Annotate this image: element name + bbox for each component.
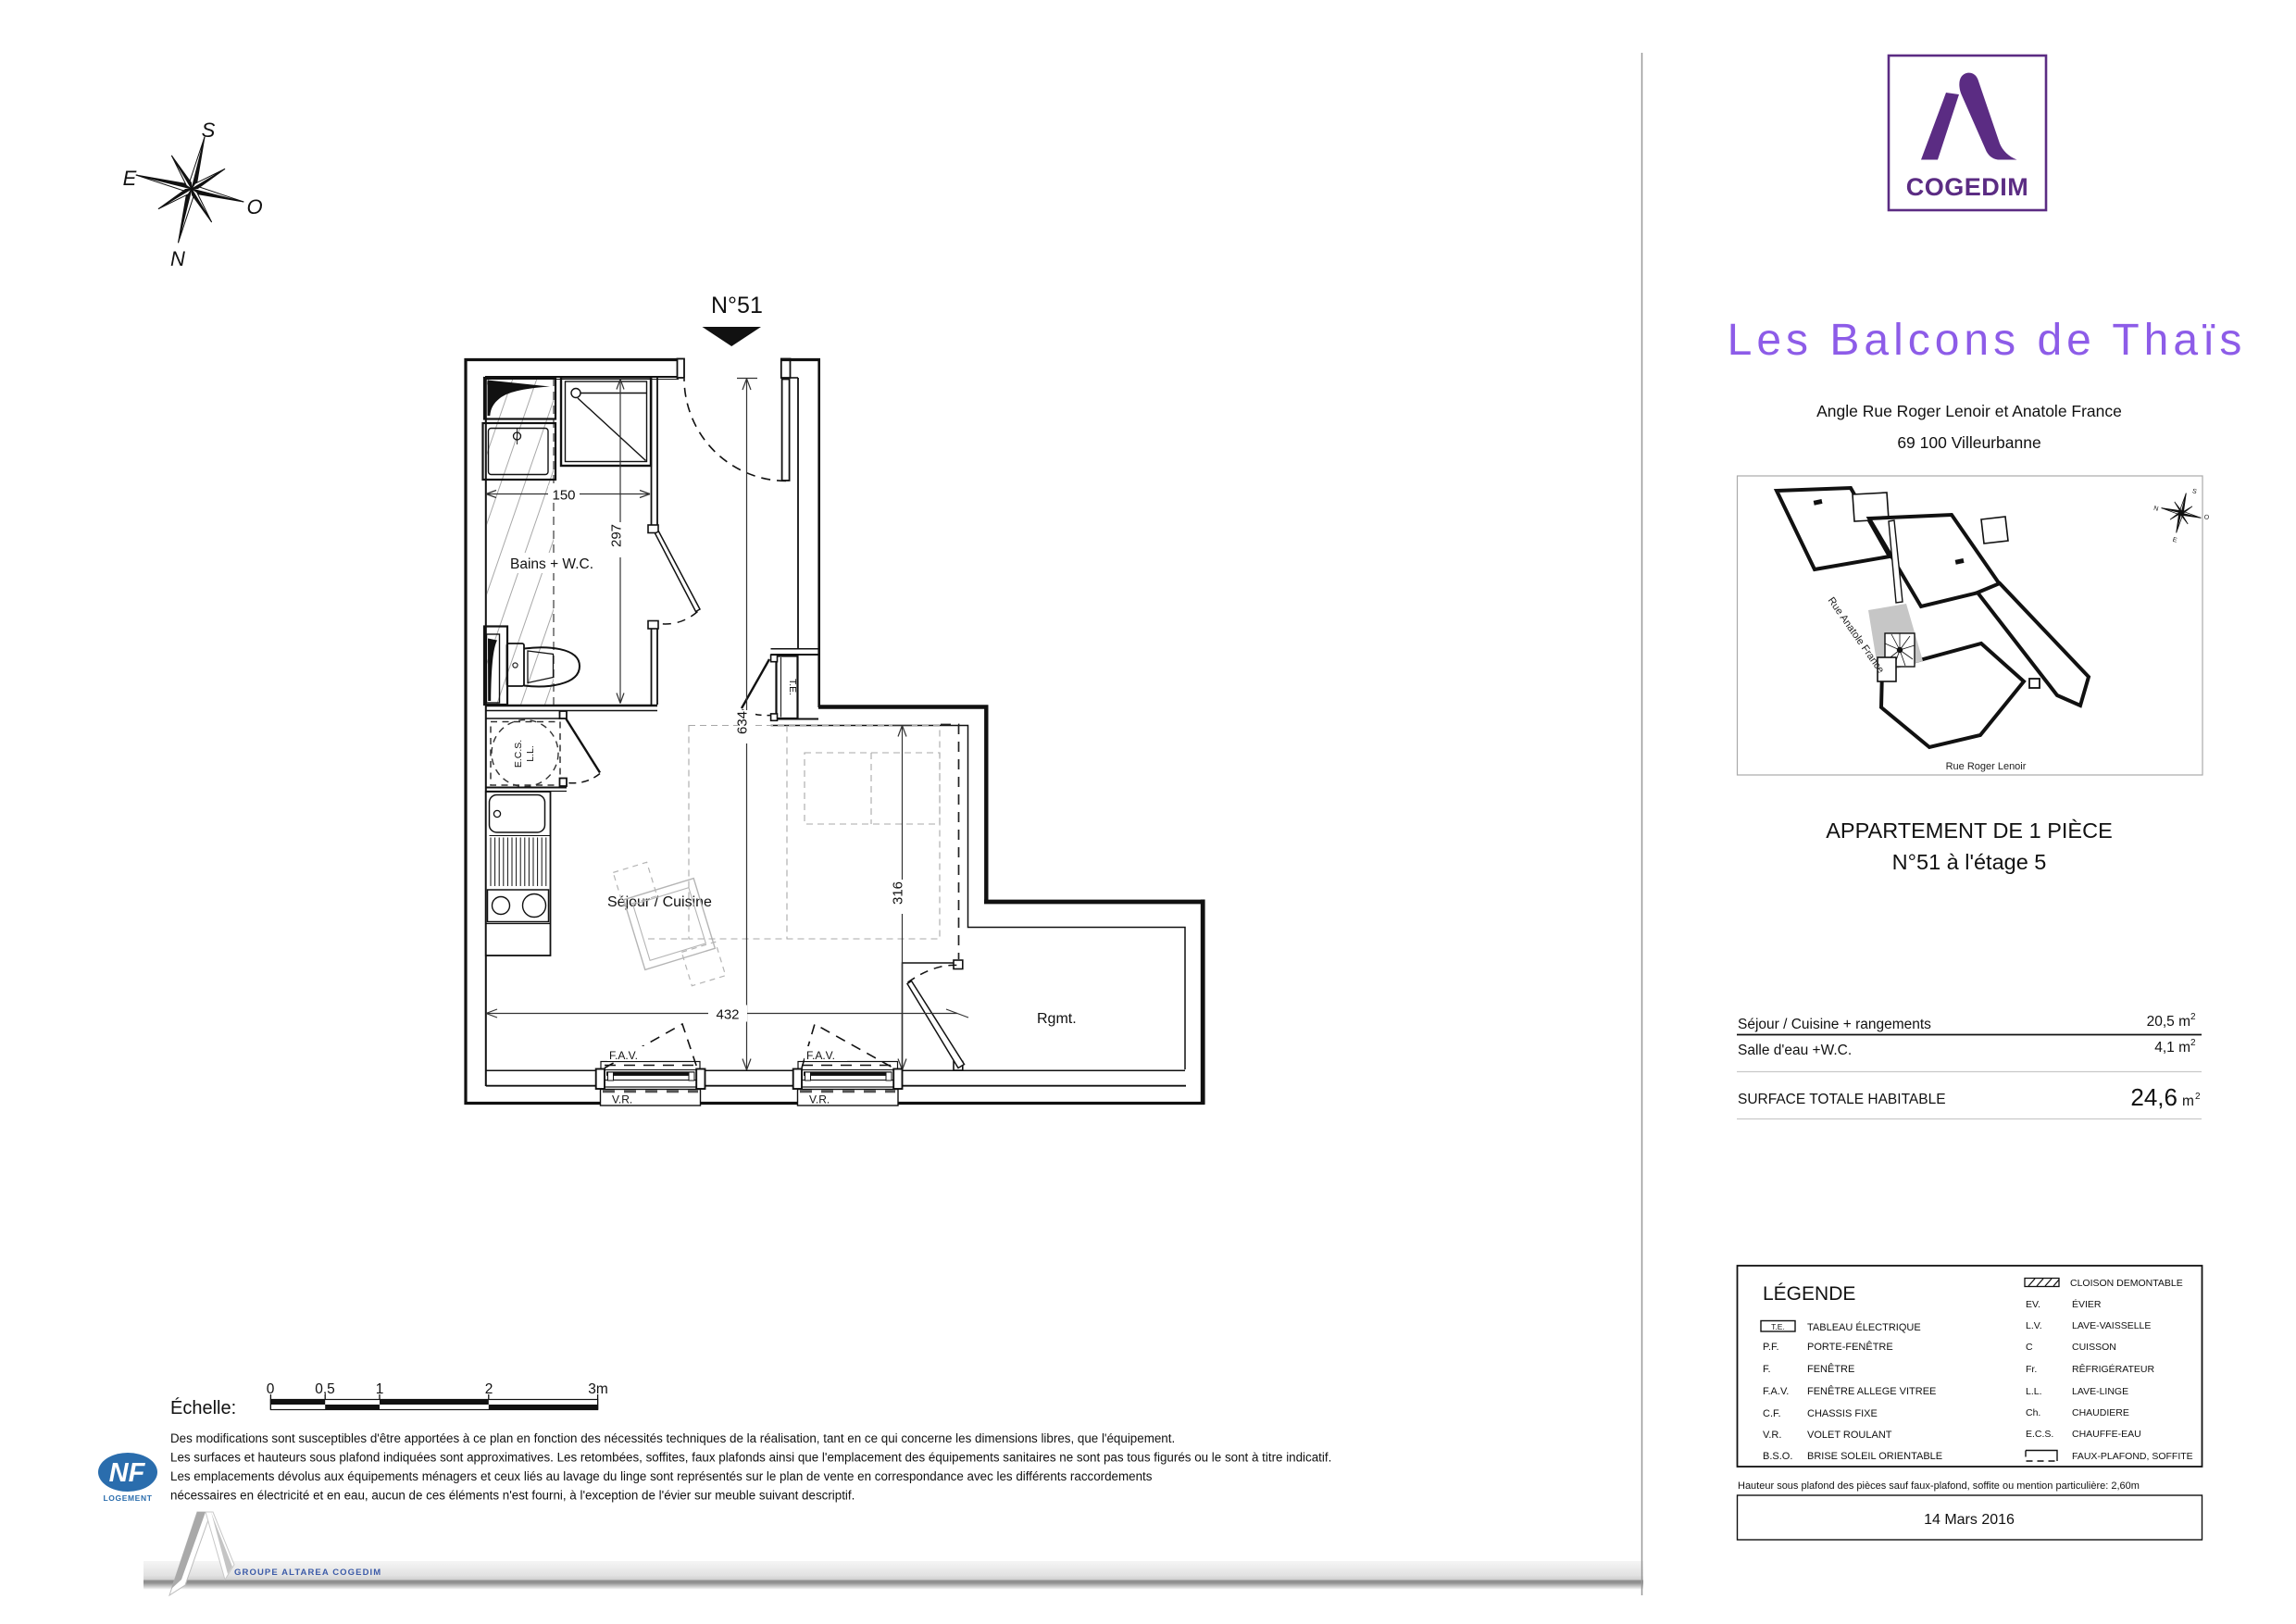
svg-text:LAVE-VAISSELLE: LAVE-VAISSELLE	[2072, 1320, 2151, 1331]
svg-text:V.R.: V.R.	[612, 1093, 632, 1106]
svg-text:S: S	[202, 119, 216, 142]
svg-text:N°51 à l'étage 5: N°51 à l'étage 5	[1892, 850, 2047, 874]
svg-text:SURFACE TOTALE HABITABLE: SURFACE TOTALE HABITABLE	[1738, 1092, 1946, 1107]
svg-text:F.: F.	[1763, 1364, 1771, 1375]
svg-text:4,1 m: 4,1 m	[2154, 1040, 2190, 1056]
svg-text:L.L.: L.L.	[2026, 1386, 2042, 1397]
svg-text:ÉVIER: ÉVIER	[2072, 1298, 2102, 1310]
svg-text:69 100 Villeurbanne: 69 100 Villeurbanne	[1897, 433, 2040, 452]
svg-text:Les emplacements dévolus aux é: Les emplacements dévolus aux équipements…	[170, 1469, 1153, 1483]
svg-text:NF: NF	[109, 1458, 146, 1488]
svg-text:2: 2	[2190, 1038, 2196, 1048]
svg-text:F.A.V.: F.A.V.	[806, 1049, 835, 1062]
svg-text:20,5 m: 20,5 m	[2147, 1014, 2190, 1030]
svg-text:Les Balcons de Thaïs: Les Balcons de Thaïs	[1728, 316, 2247, 365]
svg-text:CLOISON DEMONTABLE: CLOISON DEMONTABLE	[2070, 1278, 2183, 1289]
svg-text:V.R.: V.R.	[809, 1093, 830, 1106]
svg-text:Fr.: Fr.	[2026, 1364, 2037, 1375]
svg-text:Séjour / Cuisine + rangements: Séjour / Cuisine + rangements	[1738, 1017, 1931, 1032]
svg-text:634: 634	[735, 711, 751, 734]
svg-text:VOLET ROULANT: VOLET ROULANT	[1807, 1430, 1892, 1441]
svg-text:O: O	[246, 195, 262, 219]
svg-text:LOGEMENT: LOGEMENT	[104, 1493, 153, 1503]
svg-text:CHASSIS FIXE: CHASSIS FIXE	[1807, 1408, 1878, 1419]
svg-text:nécessaires en électricité et: nécessaires en électricité et en eau, au…	[170, 1489, 855, 1503]
svg-text:432: 432	[716, 1007, 739, 1023]
svg-text:14 Mars 2016: 14 Mars 2016	[1924, 1512, 2015, 1528]
svg-text:Hauteur sous plafond des pièce: Hauteur sous plafond des pièces sauf fau…	[1738, 1480, 2140, 1492]
svg-text:E: E	[123, 167, 137, 190]
svg-text:2: 2	[2195, 1092, 2201, 1102]
svg-text:CUISSON: CUISSON	[2072, 1342, 2116, 1353]
svg-text:Bains + W.C.: Bains + W.C.	[510, 556, 593, 572]
svg-text:Des modifications sont suscept: Des modifications sont susceptibles d'êt…	[170, 1431, 1175, 1445]
svg-text:N: N	[170, 247, 185, 270]
svg-text:TABLEAU ÉLECTRIQUE: TABLEAU ÉLECTRIQUE	[1807, 1321, 1921, 1333]
svg-text:N°51: N°51	[711, 293, 763, 319]
svg-text:PORTE-FENÊTRE: PORTE-FENÊTRE	[1807, 1341, 1893, 1353]
svg-text:2: 2	[2190, 1012, 2196, 1022]
svg-text:Rgmt.: Rgmt.	[1037, 1011, 1077, 1027]
svg-text:C: C	[2026, 1342, 2033, 1353]
svg-text:B.S.O.: B.S.O.	[1763, 1451, 1792, 1462]
svg-text:GROUPE ALTAREA COGEDIM: GROUPE ALTAREA COGEDIM	[234, 1568, 381, 1578]
svg-text:Ch.: Ch.	[2026, 1407, 2040, 1418]
svg-text:E.C.S.: E.C.S.	[2026, 1429, 2053, 1440]
svg-text:BRISE SOLEIL ORIENTABLE: BRISE SOLEIL ORIENTABLE	[1807, 1451, 1942, 1462]
svg-text:APPARTEMENT DE 1 PIÈCE: APPARTEMENT DE 1 PIÈCE	[1826, 818, 2113, 843]
svg-text:m: m	[2182, 1093, 2194, 1109]
svg-text:T.E.: T.E.	[787, 679, 798, 695]
svg-text:E.C.S.: E.C.S.	[513, 740, 524, 768]
svg-text:150: 150	[552, 488, 575, 504]
svg-text:FENÊTRE ALLEGE VITREE: FENÊTRE ALLEGE VITREE	[1807, 1385, 1936, 1397]
svg-text:Les surfaces et hauteurs sous: Les surfaces et hauteurs sous plafond in…	[170, 1451, 1331, 1465]
svg-text:Salle d'eau +W.C.: Salle d'eau +W.C.	[1738, 1043, 1852, 1058]
svg-text:CHAUFFE-EAU: CHAUFFE-EAU	[2072, 1429, 2141, 1440]
svg-text:LÉGENDE: LÉGENDE	[1763, 1283, 1855, 1305]
svg-text:C.F.: C.F.	[1763, 1408, 1781, 1419]
svg-text:F.A.V.: F.A.V.	[609, 1049, 638, 1062]
svg-text:RÊFRIGÉRATEUR: RÊFRIGÉRATEUR	[2072, 1363, 2154, 1375]
svg-text:CHAUDIERE: CHAUDIERE	[2072, 1407, 2129, 1418]
svg-text:T.E.: T.E.	[1771, 1322, 1785, 1331]
svg-text:V.R.: V.R.	[1763, 1430, 1781, 1441]
svg-text:Rue Roger Lenoir: Rue Roger Lenoir	[1946, 761, 2027, 772]
svg-text:FENÊTRE: FENÊTRE	[1807, 1363, 1854, 1375]
svg-text:LAVE-LINGE: LAVE-LINGE	[2072, 1386, 2128, 1397]
svg-text:Angle Rue Roger Lenoir et Anat: Angle Rue Roger Lenoir et Anatole France	[1816, 402, 2122, 420]
svg-text:297: 297	[609, 524, 625, 547]
svg-text:FAUX-PLAFOND, SOFFITE: FAUX-PLAFOND, SOFFITE	[2072, 1451, 2193, 1462]
svg-text:P.F.: P.F.	[1763, 1342, 1779, 1353]
svg-text:EV.: EV.	[2026, 1299, 2040, 1310]
svg-text:L.L.: L.L.	[525, 745, 536, 762]
svg-text:L.V.: L.V.	[2026, 1320, 2042, 1331]
svg-text:Échelle:: Échelle:	[170, 1397, 236, 1418]
svg-text:316: 316	[891, 881, 906, 905]
svg-text:F.A.V.: F.A.V.	[1763, 1386, 1789, 1397]
svg-text:COGEDIM: COGEDIM	[1906, 173, 2029, 201]
svg-text:24,6: 24,6	[2130, 1083, 2177, 1111]
